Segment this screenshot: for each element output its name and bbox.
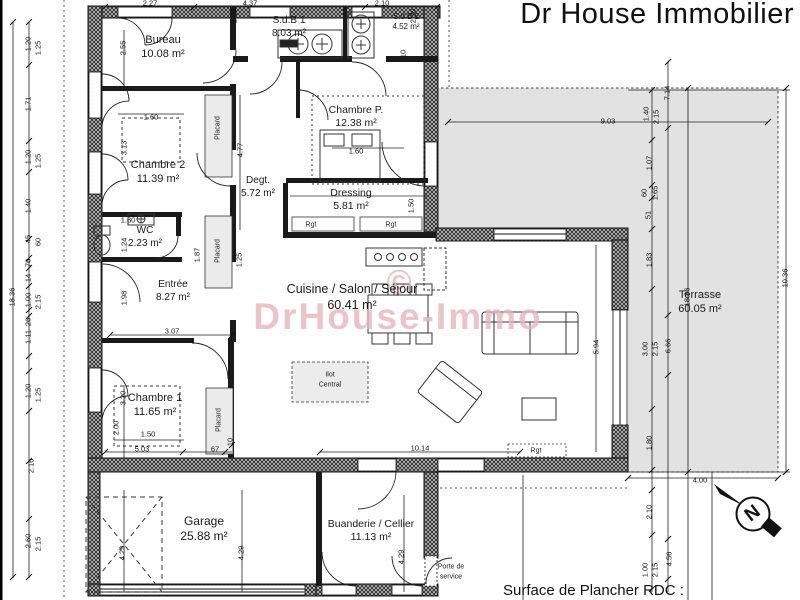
dimension-label: 7.14: [663, 86, 672, 101]
room-label-chambre-2: Chambre 211.39 m²: [131, 159, 185, 187]
dimension-label: 2.27: [143, 0, 158, 8]
annotation-rgt: Rgt: [386, 222, 397, 229]
annotation-central: Central: [319, 382, 342, 389]
dimension-label: 1.71: [24, 97, 33, 112]
room-area: 8.03 m²: [272, 28, 306, 41]
dimension-label: 6.66: [664, 339, 673, 354]
dimension-label: 2.15: [651, 342, 660, 357]
dimension-label: 10.14: [411, 444, 430, 453]
surface-plancher-label: Surface de Plancher RDC :: [503, 582, 684, 599]
dimension-label: 1.20: [24, 37, 33, 52]
terrace-area: [438, 88, 778, 472]
room-name: Chambre 2: [131, 159, 185, 173]
dimension-label: 1.25: [34, 154, 43, 169]
annotation-service: service: [440, 574, 462, 581]
dimension-label: 1.20: [24, 150, 33, 165]
dimension-label: 2.15: [34, 295, 43, 310]
room-name: Cuisine / Salon / Séjour: [287, 282, 418, 298]
room-label-s-d-b-1: S.d.B 18.03 m²: [272, 15, 306, 40]
dimension-label: 1.20: [24, 384, 33, 399]
dimension-label: 1.50: [407, 199, 416, 214]
dimension-label: 1.80: [645, 436, 654, 451]
room-label-entr-e: Entrée8.27 m²: [156, 279, 190, 304]
dimension-label: 10: [226, 438, 235, 446]
room-name: Bureau: [141, 34, 184, 48]
dimension-label: 2.15: [651, 563, 660, 578]
dimension-label: 4.29: [397, 550, 406, 565]
dimension-label: 2.15: [652, 110, 661, 125]
dimension-label: 1.24: [120, 238, 129, 253]
room-name: Degt.: [241, 175, 275, 188]
room-area: 60.41 m²: [287, 298, 418, 314]
dimension-label: 60: [34, 238, 43, 246]
annotation-placard: Placard: [215, 239, 222, 263]
dimension-label: 45: [24, 235, 33, 243]
dimension-label: 1.60: [349, 147, 364, 156]
dimension-label: 1.87: [193, 248, 202, 263]
room-label-degt-: Degt.5.72 m²: [241, 175, 275, 200]
dimension-label: 3.07: [165, 327, 180, 336]
room-area: 2.23 m²: [128, 238, 162, 251]
dimension-label: 5.03: [135, 445, 150, 454]
floor-plan-canvas: Dr House Immobilier © DrHouse-Immo Surfa…: [0, 0, 800, 600]
room-area: 11.39 m²: [131, 173, 185, 187]
room-label-chambre-p-: Chambre P.12.38 m²: [329, 104, 384, 130]
dimension-label: 67: [211, 445, 219, 454]
annotation-porte-de: Porte de: [438, 564, 464, 571]
dimension-label: 3.13: [120, 141, 129, 156]
dimension-label: 1.25: [34, 41, 43, 56]
dimension-label: 2.55: [119, 41, 128, 56]
page-title: Dr House Immobilier: [520, 0, 794, 31]
dimension-label: 1.25: [235, 253, 244, 268]
dimension-label: 1.60: [144, 113, 159, 122]
room-name: S.d.B 1: [272, 15, 306, 28]
room-label-dressing: Dressing5.81 m²: [330, 187, 371, 213]
dimension-label: 2.16: [27, 459, 36, 474]
room-name: WC: [128, 225, 162, 238]
scan-edge: [0, 0, 3, 600]
dimension-label: 76: [24, 259, 33, 267]
annotation-ilot: Ilot: [325, 372, 334, 379]
dimension-label: 2.20: [409, 9, 418, 24]
dimension-label: 1.00: [641, 563, 650, 578]
room-area: 11.65 m²: [128, 406, 182, 420]
dimension-label: 1.50: [141, 430, 156, 439]
dimension-label: 4.00: [693, 476, 708, 485]
dimension-label: 9.03: [601, 117, 616, 126]
dimension-label: 2.00: [112, 421, 121, 436]
dimension-label: 1.80: [121, 216, 136, 225]
dimension-label: 1.25: [34, 388, 43, 403]
dimension-label: 4.29: [237, 546, 246, 561]
annotation-rgt: Rgt: [306, 222, 317, 229]
dimension-label: 2.20: [230, 9, 239, 24]
dimension-label: 26: [24, 318, 33, 326]
dimension-label: 10.36: [781, 269, 790, 288]
room-label-buanderie-cellier: Buanderie / Cellier11.13 m²: [328, 518, 414, 544]
dimension-label: 1.65: [651, 186, 660, 201]
room-name: Chambre P.: [329, 104, 384, 117]
dimension-label: 2.60: [24, 534, 33, 549]
dimension-label: 4.29: [118, 546, 127, 561]
annotation-rgt: Rgt: [531, 448, 542, 455]
room-area: 25.88 m²: [180, 529, 227, 544]
room-area: 5.81 m²: [330, 200, 371, 213]
dimension-label: 10: [399, 50, 408, 58]
room-label-cuisine-salon-s-jour: Cuisine / Salon / Séjour60.41 m²: [287, 282, 418, 313]
dimension-label: 60: [640, 189, 649, 197]
dimension-label: 1.83: [645, 253, 654, 268]
dimension-label: 4.56: [665, 552, 674, 567]
annotation-placard: Placard: [216, 408, 223, 432]
dimension-label: 14: [24, 274, 33, 282]
room-name: Garage: [180, 514, 227, 529]
room-name: Entrée: [156, 279, 190, 292]
dimension-label: 1.98: [120, 291, 129, 306]
room-area: 5.72 m²: [241, 188, 275, 201]
dimension-label: 2.15: [34, 537, 43, 552]
dimension-label: 4.37: [243, 0, 258, 8]
room-area: 11.13 m²: [328, 531, 414, 544]
dimension-label: 4.77: [236, 143, 245, 158]
dimension-label: 2.10: [645, 505, 654, 520]
room-label-wc: WC2.23 m²: [128, 225, 162, 250]
room-label-chambre-1: Chambre 111.65 m²: [128, 392, 182, 420]
annotation-placard: Placard: [215, 116, 222, 140]
dimension-label: 2.10: [375, 0, 390, 8]
room-label-bureau: Bureau10.08 m²: [141, 34, 184, 62]
room-label-garage: Garage25.88 m²: [180, 514, 227, 544]
room-name: Chambre 1: [128, 392, 182, 406]
dimension-label: 1.00: [24, 293, 33, 308]
room-area: 8.27 m²: [156, 292, 190, 305]
dimension-label: 1.07: [645, 156, 654, 171]
room-area: 10.08 m²: [141, 48, 184, 62]
dimension-label: 1.40: [24, 199, 33, 214]
dimension-label: 3.00: [641, 342, 650, 357]
room-name: Dressing: [330, 187, 371, 200]
dimension-label: 18.36: [8, 288, 17, 307]
dimension-label: 1.11: [24, 330, 33, 344]
dimension-label: 1.40: [642, 107, 651, 122]
dimension-label: 51: [644, 211, 653, 219]
dimension-label: 5.94: [592, 340, 601, 355]
room-area: 12.38 m²: [329, 117, 384, 130]
dimension-label: 18.36: [683, 288, 692, 307]
room-name: Buanderie / Cellier: [328, 518, 414, 531]
room-area: 4.52 m²: [392, 22, 419, 32]
dimension-label: 3.20: [119, 391, 128, 406]
